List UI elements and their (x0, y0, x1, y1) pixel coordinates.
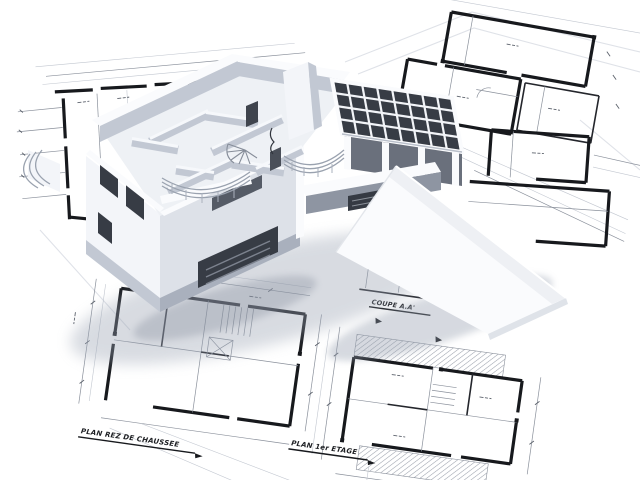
architectural-render: PLAN REZ DE CHAUSSEE COUPE A.A' (0, 0, 640, 480)
scene-canvas: PLAN REZ DE CHAUSSEE COUPE A.A' (0, 0, 640, 480)
corner-column (296, 143, 304, 239)
